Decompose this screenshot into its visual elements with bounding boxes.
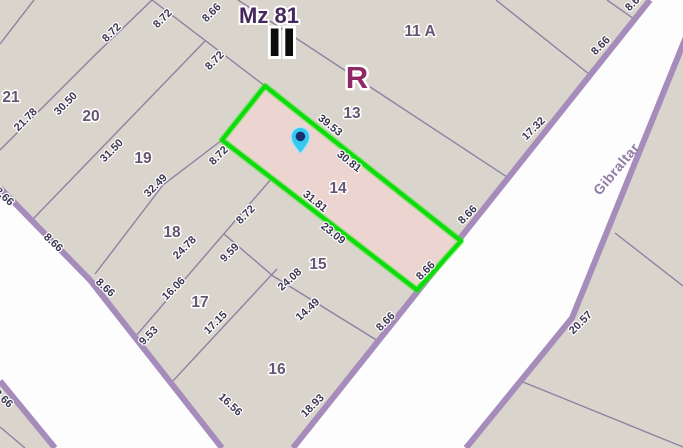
- svg-text:11 A: 11 A: [404, 23, 435, 40]
- svg-text:16: 16: [268, 361, 286, 378]
- svg-text:R: R: [346, 60, 368, 95]
- svg-text:17: 17: [191, 294, 208, 311]
- svg-text:15: 15: [309, 256, 327, 273]
- svg-text:21: 21: [2, 89, 20, 106]
- svg-text:20: 20: [82, 108, 99, 125]
- svg-text:18: 18: [163, 224, 181, 241]
- svg-text:Mz 81: Mz 81: [239, 3, 299, 28]
- svg-text:14: 14: [329, 180, 347, 197]
- svg-text:13: 13: [343, 105, 361, 122]
- svg-text:19: 19: [134, 150, 152, 167]
